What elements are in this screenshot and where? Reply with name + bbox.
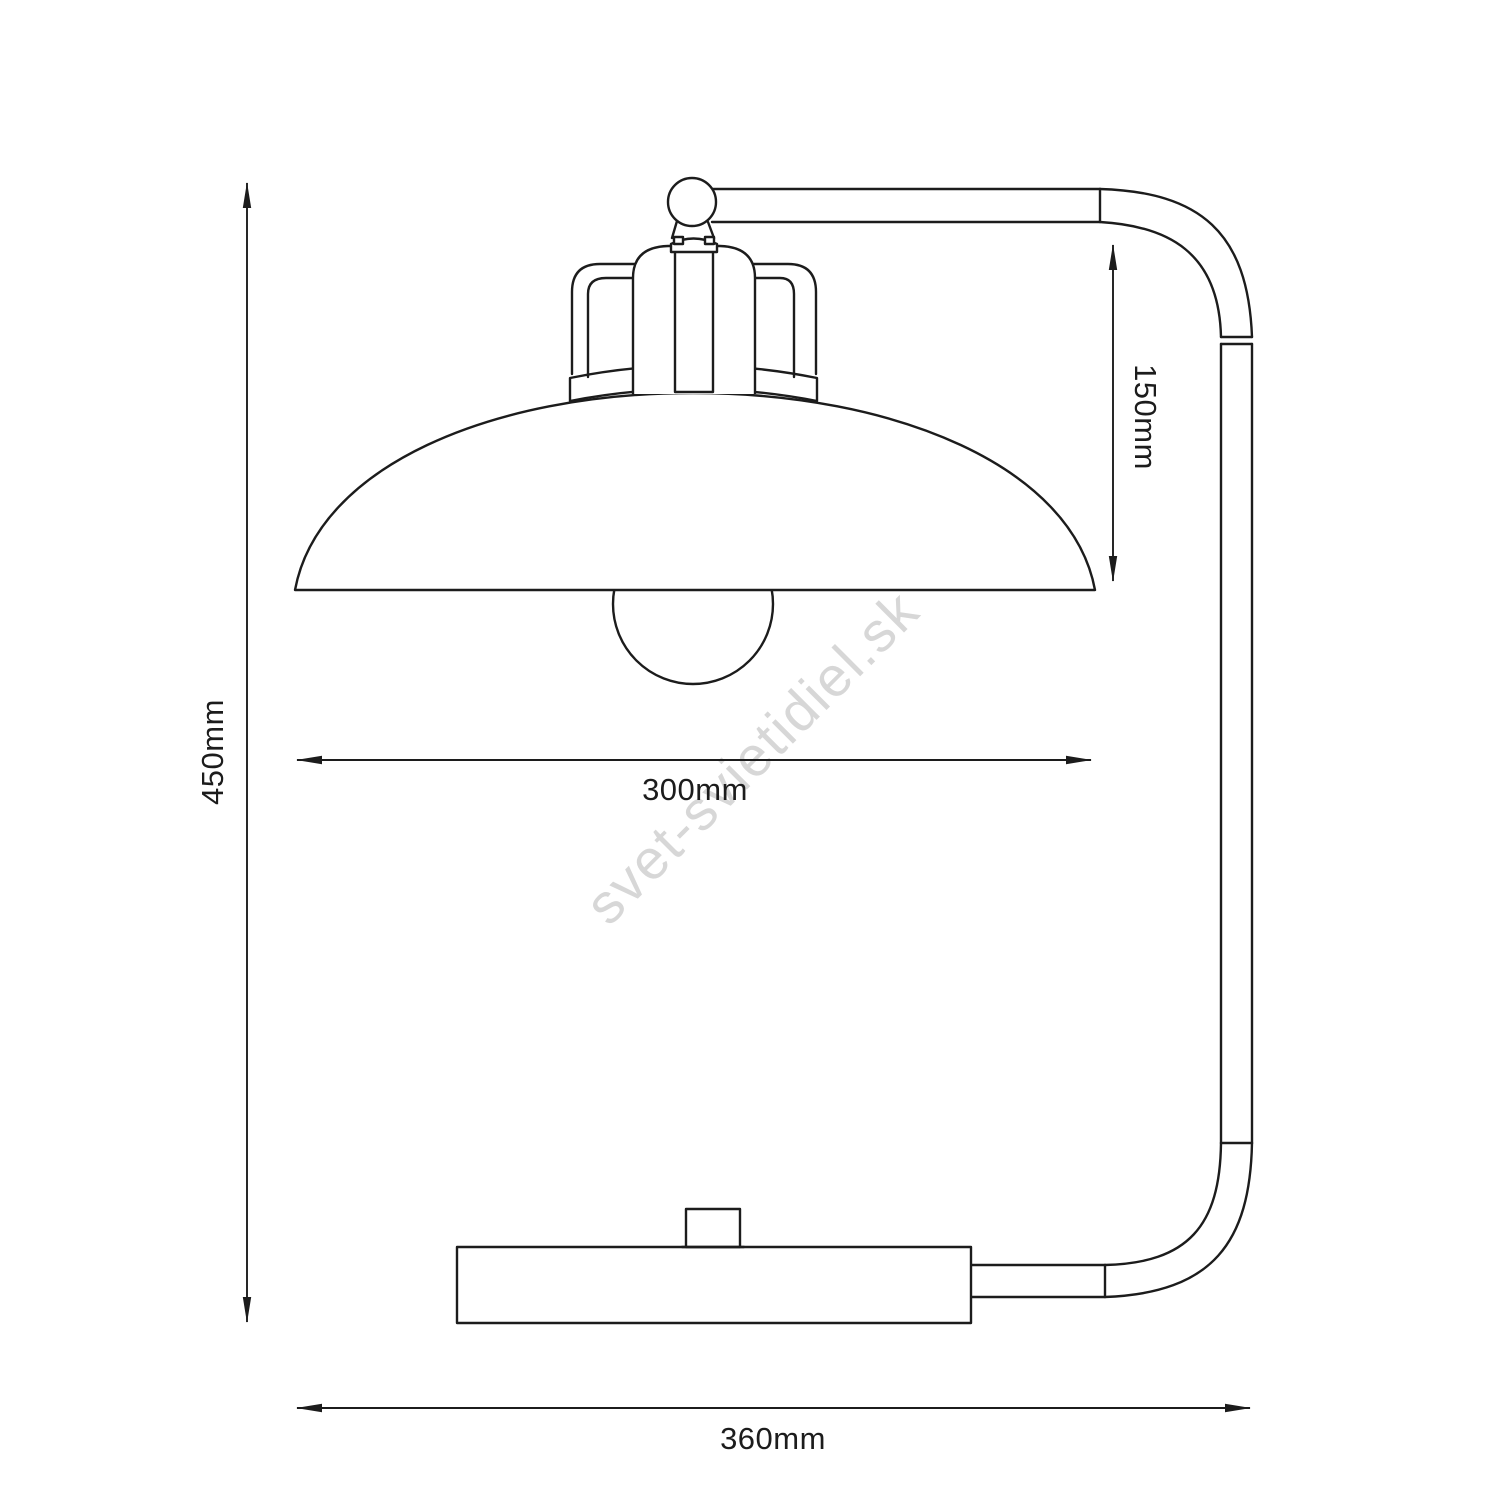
dimension-label-shade-diameter: 300mm [642, 772, 748, 807]
dimension-base-width: 360mm [297, 1408, 1250, 1456]
lamp-dimension-drawing: svet-svietidiel.sk [0, 0, 1500, 1500]
ball-joint [668, 178, 716, 238]
base [457, 1247, 971, 1323]
switch-knob [682, 1209, 744, 1247]
stand-bottom-tube [965, 1265, 1105, 1297]
watermark-text: svet-svietidiel.sk [573, 578, 931, 936]
dimension-label-total-height: 450mm [195, 699, 230, 805]
socket-column [675, 243, 713, 392]
stand-upper-curve [1100, 189, 1252, 344]
dimension-total-height: 450mm [195, 183, 247, 1322]
dimension-shade-drop: 150mm [1113, 245, 1163, 581]
stand-tube [1221, 344, 1252, 1143]
dimension-label-base-width: 360mm [720, 1421, 826, 1456]
dimension-shade-diameter: 300mm [297, 760, 1091, 807]
watermark: svet-svietidiel.sk [573, 578, 931, 936]
socket-band [671, 237, 717, 252]
stand-lower-curve [1105, 1143, 1252, 1297]
arm [700, 189, 1100, 222]
shade-dome [295, 393, 1095, 590]
dimension-label-shade-drop: 150mm [1128, 364, 1163, 470]
technical-drawing-page: svet-svietidiel.sk [0, 0, 1500, 1500]
